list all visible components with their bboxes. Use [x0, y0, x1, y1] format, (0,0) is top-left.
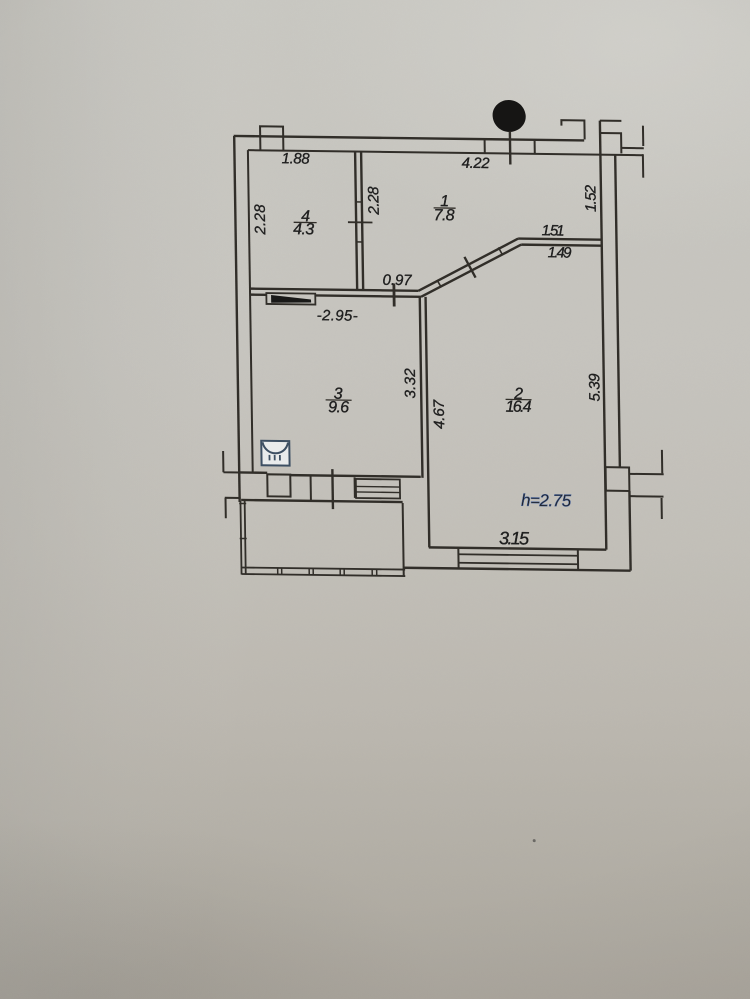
- svg-text:1.51: 1.51: [541, 222, 564, 239]
- svg-text:-2.95-: -2.95-: [317, 307, 358, 325]
- svg-text:0.97: 0.97: [382, 272, 412, 289]
- svg-text:2.28: 2.28: [252, 204, 269, 236]
- svg-text:3.32: 3.32: [402, 368, 419, 399]
- svg-text:5.39: 5.39: [586, 373, 603, 402]
- svg-text:1.49: 1.49: [547, 244, 572, 261]
- svg-text:7.8: 7.8: [434, 207, 455, 224]
- svg-text:1.52: 1.52: [582, 184, 599, 212]
- svg-text:3.15: 3.15: [499, 528, 530, 548]
- svg-text:2.28: 2.28: [365, 186, 382, 216]
- svg-text:4.22: 4.22: [462, 155, 491, 172]
- svg-text:9.6: 9.6: [328, 399, 349, 416]
- svg-text:4.3: 4.3: [293, 221, 314, 238]
- svg-text:1.88: 1.88: [281, 150, 310, 167]
- svg-text:16.4: 16.4: [505, 399, 531, 416]
- svg-text:h=2.75: h=2.75: [521, 491, 572, 511]
- svg-text:4.67: 4.67: [431, 399, 448, 429]
